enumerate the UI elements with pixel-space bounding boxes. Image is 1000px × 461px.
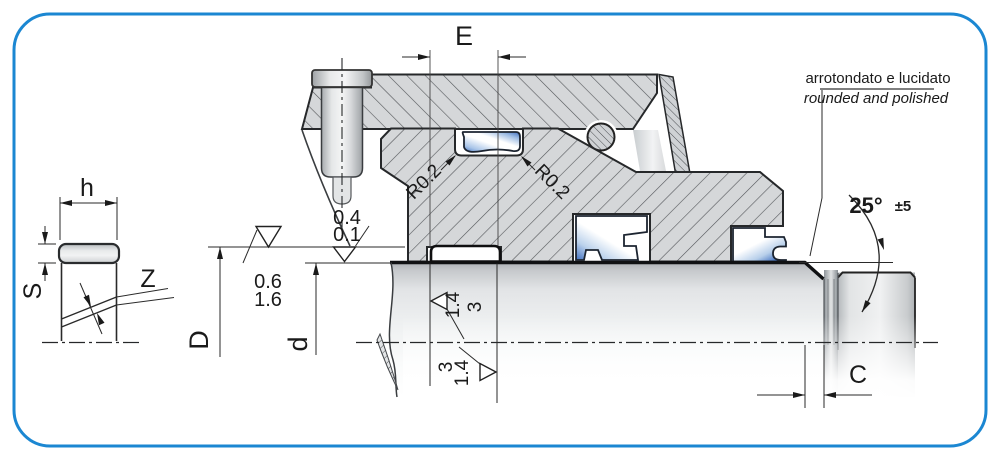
note-english: rounded and polished [804, 90, 949, 107]
shaft-upper-value-1: 1.4 [443, 291, 464, 318]
seal-installation-drawing: h S Z [0, 0, 1000, 461]
label-z: Z [140, 265, 155, 293]
angle-tolerance: ±5 [895, 198, 912, 215]
shaft-lower-value-2: 1.4 [452, 359, 473, 386]
roughness-bore-bottom: 0.1 [333, 224, 361, 246]
label-h: h [80, 174, 94, 202]
technical-drawing-page: h S Z [0, 0, 1000, 461]
note-italian: arrotondato e lucidato [805, 70, 950, 87]
label-d-big: D [184, 330, 214, 350]
roughness-groove-bottom: 1.6 [254, 289, 282, 311]
shaft-upper-value-2: 3 [465, 302, 486, 313]
label-s: S [19, 283, 47, 300]
shaft-fade [403, 316, 938, 402]
label-e: E [455, 21, 473, 51]
ring-section-profile [59, 244, 119, 263]
label-c: C [849, 361, 867, 389]
static-seal [463, 132, 520, 152]
label-d-small: d [283, 336, 313, 351]
angle-value: 25° [849, 193, 882, 218]
guide-ring [431, 246, 500, 262]
